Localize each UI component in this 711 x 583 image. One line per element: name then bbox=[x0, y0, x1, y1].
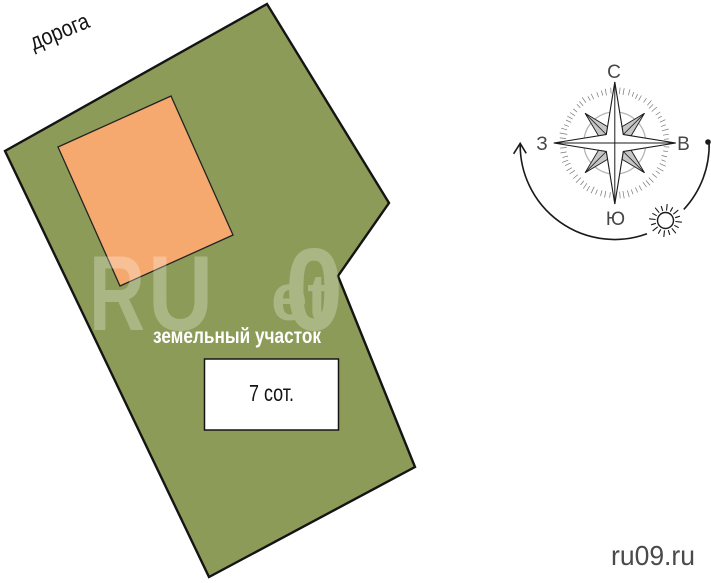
svg-text:R: R bbox=[89, 233, 145, 353]
svg-text:ru09.ru: ru09.ru bbox=[611, 540, 695, 571]
svg-text:З: З bbox=[536, 134, 547, 155]
svg-text:7 сот.: 7 сот. bbox=[249, 380, 294, 406]
svg-text:дорога: дорога bbox=[26, 7, 93, 55]
svg-text:В: В bbox=[677, 134, 690, 155]
svg-text:земельный участок: земельный участок bbox=[153, 325, 321, 348]
svg-text:Ю: Ю bbox=[606, 209, 625, 230]
svg-text:et: et bbox=[271, 260, 329, 334]
svg-text:С: С bbox=[607, 62, 621, 83]
